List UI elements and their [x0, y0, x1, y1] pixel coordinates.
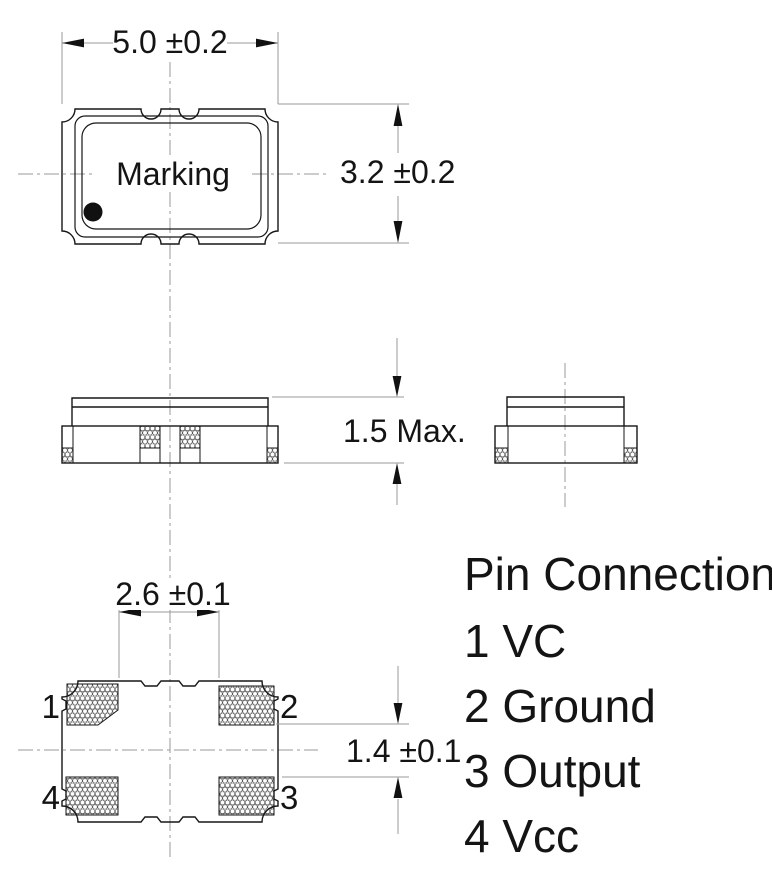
side-height-label: 1.5 Max. — [343, 415, 466, 447]
dim-pad-span-2-6 — [119, 602, 219, 678]
pin-4-label: 4 — [28, 781, 60, 814]
pad-3 — [219, 777, 274, 815]
arrowhead-up — [394, 104, 403, 126]
package-outline-drawing: 5.0 ±0.2 3.2 ±0.2 Marking 1.5 Max. 2.6 ±… — [0, 0, 772, 881]
pin-1-label: 1 — [28, 690, 60, 723]
dim-width-label: 5.0 ±0.2 — [62, 26, 278, 58]
castellation-pad — [140, 426, 160, 448]
pad-span-label: 2.6 ±0.1 — [110, 578, 236, 610]
corner-pad — [624, 448, 637, 463]
arrowhead-down — [394, 221, 403, 243]
pin1-indicator-dot — [84, 203, 103, 222]
arrowhead-up — [393, 463, 402, 484]
marking-label: Marking — [95, 158, 251, 190]
pin-2-label: 2 — [280, 690, 298, 723]
pin-connection-item-1: 1 VC — [464, 618, 566, 664]
side-view-end — [495, 397, 637, 463]
pad-4 — [66, 777, 118, 815]
pin-connection-item-3: 3 Output — [464, 748, 640, 794]
arrowhead-up — [394, 777, 403, 798]
castellation-pad — [180, 426, 200, 448]
dim-height-label: 3.2 ±0.2 — [340, 156, 455, 188]
arrowhead-down — [393, 376, 402, 397]
pin-connection-item-4: 4 Vcc — [464, 813, 579, 859]
pin-connection-title: Pin Connection — [464, 551, 772, 597]
arrowhead-down — [394, 703, 403, 724]
corner-pad — [495, 448, 508, 463]
pin-connection-item-2: 2 Ground — [464, 683, 656, 729]
pin-3-label: 3 — [280, 781, 298, 814]
base-outline — [495, 426, 637, 463]
corner-pad — [62, 448, 73, 463]
corner-pad — [267, 448, 278, 463]
pad-gap-label: 1.4 ±0.1 — [346, 735, 461, 767]
